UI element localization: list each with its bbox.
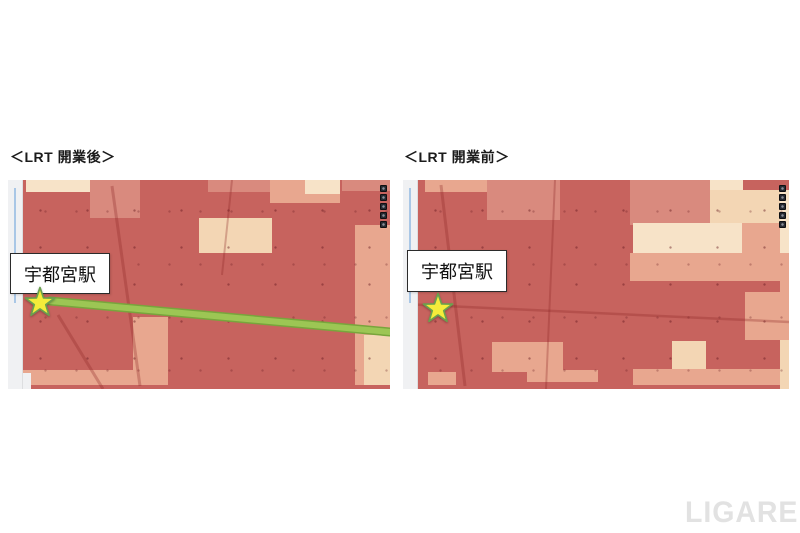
map-tool-button[interactable] bbox=[380, 185, 387, 192]
figure-canvas: ＜LRT 開業後＞ ＜LRT 開業前＞ 宇都宮駅 宇都宮駅 LIGARE bbox=[0, 0, 800, 533]
map-before-lrt[interactable]: 宇都宮駅 bbox=[403, 180, 789, 389]
map-tool-button[interactable] bbox=[380, 212, 387, 219]
map-toolbar[interactable] bbox=[779, 185, 786, 228]
map-tool-button[interactable] bbox=[380, 203, 387, 210]
map-tool-button[interactable] bbox=[380, 221, 387, 228]
panel-title-before: ＜LRT 開業前＞ bbox=[404, 147, 510, 167]
map-tool-button[interactable] bbox=[380, 194, 387, 201]
station-star-icon bbox=[420, 291, 456, 325]
map-tool-button[interactable] bbox=[779, 221, 786, 228]
ligare-watermark: LIGARE bbox=[685, 496, 798, 530]
map-tool-button[interactable] bbox=[779, 203, 786, 210]
map-after-lrt[interactable]: 宇都宮駅 bbox=[8, 180, 390, 389]
station-label-text: 宇都宮駅 bbox=[421, 258, 493, 284]
station-label-box: 宇都宮駅 bbox=[407, 250, 507, 292]
map-toolbar[interactable] bbox=[380, 185, 387, 228]
station-label-text: 宇都宮駅 bbox=[24, 261, 96, 287]
map-tool-button[interactable] bbox=[779, 212, 786, 219]
panel-title-after: ＜LRT 開業後＞ bbox=[10, 147, 116, 167]
map-tool-button[interactable] bbox=[779, 185, 786, 192]
map-tool-button[interactable] bbox=[779, 194, 786, 201]
station-star-icon bbox=[22, 285, 58, 319]
